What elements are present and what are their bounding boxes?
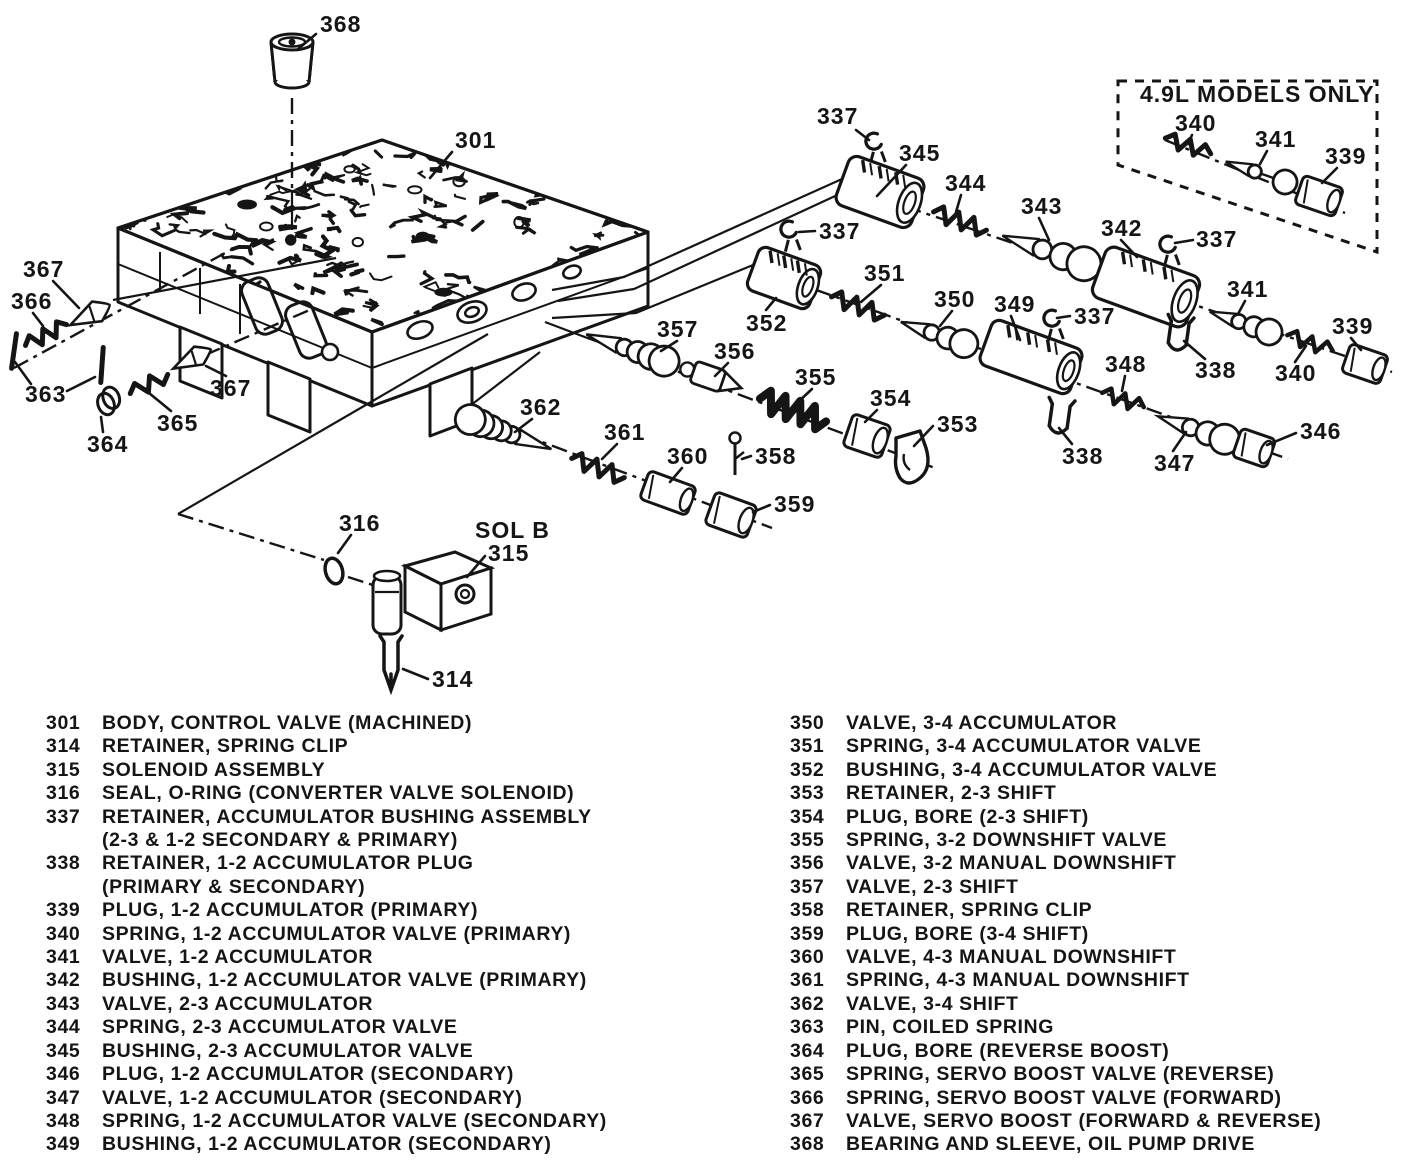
part-364 [93, 385, 124, 417]
body-bore-hole [322, 344, 338, 360]
part-callout-368: 368 [320, 11, 361, 37]
part-name: SPRING, 1-2 ACCUMULATOR VALVE (SECONDARY… [102, 1110, 746, 1133]
part-number: 338 [46, 852, 90, 875]
part-name: RETAINER, SPRING CLIP [102, 735, 746, 758]
part-callout-338: 338 [1195, 357, 1236, 383]
part-callout-349: 349 [994, 291, 1035, 317]
part-callout-340: 340 [1175, 110, 1216, 136]
part-callout-342: 342 [1101, 215, 1142, 241]
part-callout-367: 367 [23, 256, 64, 282]
part-name: RETAINER, 1-2 ACCUMULATOR PLUG [102, 852, 746, 875]
parts-list-item: 346PLUG, 1-2 ACCUMULATOR (SECONDARY) [46, 1063, 746, 1086]
part-number: 337 [46, 806, 90, 829]
part-name: SEAL, O-RING (CONVERTER VALVE SOLENOID) [102, 782, 746, 805]
part-number: 353 [790, 782, 834, 805]
parts-list-item: 352BUSHING, 3-4 ACCUMULATOR VALVE [790, 759, 1405, 782]
part-name: SPRING, 3-4 ACCUMULATOR VALVE [846, 735, 1405, 758]
part-341 [1206, 299, 1286, 348]
parts-list-item: 314RETAINER, SPRING CLIP [46, 735, 746, 758]
part-number: 340 [46, 923, 90, 946]
part-number: 367 [790, 1110, 834, 1133]
part-number: 301 [46, 712, 90, 735]
part-number: 358 [790, 899, 834, 922]
parts-list-item: 367VALVE, SERVO BOOST (FORWARD & REVERSE… [790, 1110, 1405, 1133]
part-349 [978, 318, 1087, 397]
parts-list-item: 359PLUG, BORE (3-4 SHIFT) [790, 923, 1405, 946]
parts-list-item: 348SPRING, 1-2 ACCUMULATOR VALVE (SECOND… [46, 1110, 746, 1133]
part-callout-315: 315 [488, 540, 529, 566]
parts-list-item: 338RETAINER, 1-2 ACCUMULATOR PLUG [46, 852, 746, 875]
part-number: 344 [46, 1016, 90, 1039]
part-callout-337: 337 [819, 218, 860, 244]
part-346 [1232, 428, 1276, 468]
part-name: VALVE, SERVO BOOST (FORWARD & REVERSE) [846, 1110, 1405, 1133]
part-361 [569, 451, 627, 485]
part-number: 359 [790, 923, 834, 946]
part-number: 352 [790, 759, 834, 782]
parts-list-item: 342BUSHING, 1-2 ACCUMULATOR VALVE (PRIMA… [46, 969, 746, 992]
parts-list-item-continuation: (2-3 & 1-2 SECONDARY & PRIMARY) [46, 829, 746, 852]
parts-list-item: 343VALVE, 2-3 ACCUMULATOR [46, 993, 746, 1016]
part-callout-343: 343 [1021, 193, 1062, 219]
part-number: 314 [46, 735, 90, 758]
part-callout-363: 363 [25, 381, 66, 407]
part-number: 368 [790, 1133, 834, 1156]
part-callout-345: 345 [899, 140, 940, 166]
part-name: VALVE, 3-2 MANUAL DOWNSHIFT [846, 852, 1405, 875]
part-callout-301: 301 [455, 127, 496, 153]
part-name: SPRING, 1-2 ACCUMULATOR VALVE (PRIMARY) [102, 923, 746, 946]
part-number: 347 [46, 1087, 90, 1110]
part-name: PLUG, 1-2 ACCUMULATOR (PRIMARY) [102, 899, 746, 922]
part-callout-365: 365 [157, 410, 198, 436]
parts-list-item: 350VALVE, 3-4 ACCUMULATOR [790, 712, 1405, 735]
part-callout-359: 359 [774, 491, 815, 517]
part-callout-356: 356 [714, 338, 755, 364]
part-number: 363 [790, 1016, 834, 1039]
part-callout-362: 362 [520, 394, 561, 420]
part-name: VALVE, 3-4 ACCUMULATOR [846, 712, 1405, 735]
part-name: PIN, COILED SPRING [846, 1016, 1405, 1039]
part-352 [745, 245, 825, 312]
parts-list-item: 344SPRING, 2-3 ACCUMULATOR VALVE [46, 1016, 746, 1039]
part-number: 315 [46, 759, 90, 782]
part-callout-347: 347 [1154, 450, 1195, 476]
part-callout-316: 316 [339, 510, 380, 536]
parts-list-item: 340SPRING, 1-2 ACCUMULATOR VALVE (PRIMAR… [46, 923, 746, 946]
part-314 [380, 636, 402, 690]
part-callout-351: 351 [864, 260, 905, 286]
part-339-inset [1294, 175, 1344, 217]
part-callout-355: 355 [795, 364, 836, 390]
part-number: 364 [790, 1040, 834, 1063]
part-358 [730, 433, 745, 476]
part-339 [1341, 343, 1389, 385]
part-359 [705, 492, 758, 539]
part-callout-337: 337 [1074, 303, 1115, 329]
exploded-diagram: 3683013373453443433423373413393403383373… [0, 0, 1408, 710]
part-callout-314: 314 [432, 666, 473, 692]
part-callout-367: 367 [210, 375, 251, 401]
part-callout-357: 357 [657, 316, 698, 342]
part-name: SPRING, 2-3 ACCUMULATOR VALVE [102, 1016, 746, 1039]
parts-list-item: 345BUSHING, 2-3 ACCUMULATOR VALVE [46, 1040, 746, 1063]
parts-list-item: 357VALVE, 2-3 SHIFT [790, 876, 1405, 899]
parts-list-item: 341VALVE, 1-2 ACCUMULATOR [46, 946, 746, 969]
part-number: 360 [790, 946, 834, 969]
part-name: PLUG, BORE (3-4 SHIFT) [846, 923, 1405, 946]
part-363-b [98, 345, 106, 385]
part-number: 345 [46, 1040, 90, 1063]
part-360 [639, 470, 697, 515]
part-name: PLUG, BORE (2-3 SHIFT) [846, 806, 1405, 829]
parts-list-item-continuation: (PRIMARY & SECONDARY) [46, 876, 746, 899]
part-366 [22, 318, 69, 351]
part-number: 339 [46, 899, 90, 922]
part-name: VALVE, 1-2 ACCUMULATOR (SECONDARY) [102, 1087, 746, 1110]
part-name: PLUG, 1-2 ACCUMULATOR (SECONDARY) [102, 1063, 746, 1086]
parts-list-item: 368BEARING AND SLEEVE, OIL PUMP DRIVE [790, 1133, 1405, 1156]
part-number: 346 [46, 1063, 90, 1086]
part-name: SPRING, SERVO BOOST VALVE (REVERSE) [846, 1063, 1405, 1086]
part-callout-364: 364 [87, 431, 128, 457]
part-callout-4-9l-models-only: 4.9L MODELS ONLY [1140, 81, 1375, 107]
part-name: VALVE, 2-3 ACCUMULATOR [102, 993, 746, 1016]
parts-list-item: 339PLUG, 1-2 ACCUMULATOR (PRIMARY) [46, 899, 746, 922]
part-name-continued: (2-3 & 1-2 SECONDARY & PRIMARY) [102, 829, 746, 852]
parts-list-item: 362VALVE, 3-4 SHIFT [790, 993, 1405, 1016]
part-name: VALVE, 2-3 SHIFT [846, 876, 1405, 899]
parts-list-item: 351SPRING, 3-4 ACCUMULATOR VALVE [790, 735, 1405, 758]
part-name: VALVE, 1-2 ACCUMULATOR [102, 946, 746, 969]
part-number: 349 [46, 1133, 90, 1156]
part-name: SPRING, 3-2 DOWNSHIFT VALVE [846, 829, 1405, 852]
parts-list-item: 356VALVE, 3-2 MANUAL DOWNSHIFT [790, 852, 1405, 875]
parts-list-item: 301BODY, CONTROL VALVE (MACHINED) [46, 712, 746, 735]
part-number: 357 [790, 876, 834, 899]
part-number: 350 [790, 712, 834, 735]
parts-list-item: 363PIN, COILED SPRING [790, 1016, 1405, 1039]
part-callout-341: 341 [1255, 126, 1296, 152]
part-name: BODY, CONTROL VALVE (MACHINED) [102, 712, 746, 735]
part-name-continued: (PRIMARY & SECONDARY) [102, 876, 746, 899]
part-name: PLUG, BORE (REVERSE BOOST) [846, 1040, 1405, 1063]
parts-list-item: 361SPRING, 4-3 MANUAL DOWNSHIFT [790, 969, 1405, 992]
part-callout-337: 337 [817, 103, 858, 129]
parts-list-column-right: 350VALVE, 3-4 ACCUMULATOR351SPRING, 3-4 … [790, 712, 1405, 1157]
part-name: VALVE, 4-3 MANUAL DOWNSHIFT [846, 946, 1405, 969]
part-343 [997, 220, 1106, 286]
part-344 [931, 204, 989, 237]
part-callout-358: 358 [755, 443, 796, 469]
part-callout-340: 340 [1275, 360, 1316, 386]
part-341-inset [1222, 150, 1300, 197]
parts-list-item: 366SPRING, SERVO BOOST VALVE (FORWARD) [790, 1087, 1405, 1110]
part-name: RETAINER, SPRING CLIP [846, 899, 1405, 922]
part-name: BUSHING, 1-2 ACCUMULATOR VALVE (PRIMARY) [102, 969, 746, 992]
part-number: 342 [46, 969, 90, 992]
parts-list-item: 353RETAINER, 2-3 SHIFT [790, 782, 1405, 805]
part-callout-346: 346 [1300, 418, 1341, 444]
parts-list-item: 354PLUG, BORE (2-3 SHIFT) [790, 806, 1405, 829]
parts-list-item: 358RETAINER, SPRING CLIP [790, 899, 1405, 922]
parts-list-item: 316SEAL, O-RING (CONVERTER VALVE SOLENOI… [46, 782, 746, 805]
part-name: RETAINER, ACCUMULATOR BUSHING ASSEMBLY [102, 806, 746, 829]
part-callout-352: 352 [746, 310, 787, 336]
part-callout-354: 354 [870, 385, 911, 411]
parts-list-item: 355SPRING, 3-2 DOWNSHIFT VALVE [790, 829, 1405, 852]
part-name: RETAINER, 2-3 SHIFT [846, 782, 1405, 805]
part-callout-366: 366 [11, 288, 52, 314]
part-callout-350: 350 [934, 286, 975, 312]
parts-list-item: 347VALVE, 1-2 ACCUMULATOR (SECONDARY) [46, 1087, 746, 1110]
part-number: 365 [790, 1063, 834, 1086]
part-number: 356 [790, 852, 834, 875]
part-number: 341 [46, 946, 90, 969]
part-callout-339: 339 [1325, 143, 1366, 169]
part-callout-348: 348 [1105, 351, 1146, 377]
parts-list-column-left: 301BODY, CONTROL VALVE (MACHINED)314RETA… [46, 712, 746, 1157]
part-callout-341: 341 [1227, 276, 1268, 302]
part-name: BEARING AND SLEEVE, OIL PUMP DRIVE [846, 1133, 1405, 1156]
part-number: 361 [790, 969, 834, 992]
part-number: 366 [790, 1087, 834, 1110]
part-number: 351 [790, 735, 834, 758]
part-337-c [780, 220, 801, 253]
part-355 [756, 388, 829, 432]
part-353 [896, 431, 929, 483]
part-365 [127, 368, 171, 400]
parts-list-item: 365SPRING, SERVO BOOST VALVE (REVERSE) [790, 1063, 1405, 1086]
parts-list: 301BODY, CONTROL VALVE (MACHINED)314RETA… [0, 712, 1408, 1157]
part-name: SPRING, SERVO BOOST VALVE (FORWARD) [846, 1087, 1405, 1110]
part-callout-339: 339 [1332, 313, 1373, 339]
part-callout-337: 337 [1196, 226, 1237, 252]
part-316 [322, 556, 345, 586]
parts-list-item: 360VALVE, 4-3 MANUAL DOWNSHIFT [790, 946, 1405, 969]
part-351 [829, 289, 887, 322]
part-number: 355 [790, 829, 834, 852]
part-number: 362 [790, 993, 834, 1016]
parts-list-item: 364PLUG, BORE (REVERSE BOOST) [790, 1040, 1405, 1063]
manual-page: 3683013373453443433423373413393403383373… [0, 0, 1408, 1160]
part-number: 343 [46, 993, 90, 1016]
part-name: BUSHING, 3-4 ACCUMULATOR VALVE [846, 759, 1405, 782]
part-name: BUSHING, 2-3 ACCUMULATOR VALVE [102, 1040, 746, 1063]
part-callout-344: 344 [945, 170, 986, 196]
parts-list-item: 337RETAINER, ACCUMULATOR BUSHING ASSEMBL… [46, 806, 746, 829]
part-number: 354 [790, 806, 834, 829]
part-number: 316 [46, 782, 90, 805]
part-number: 348 [46, 1110, 90, 1133]
parts-list-item: 315SOLENOID ASSEMBLY [46, 759, 746, 782]
part-name: SPRING, 4-3 MANUAL DOWNSHIFT [846, 969, 1405, 992]
part-callout-338: 338 [1062, 443, 1103, 469]
part-callout-353: 353 [937, 411, 978, 437]
part-350 [896, 309, 981, 362]
part-name: SOLENOID ASSEMBLY [102, 759, 746, 782]
part-callout-360: 360 [667, 443, 708, 469]
part-name: VALVE, 3-4 SHIFT [846, 993, 1405, 1016]
part-callout-361: 361 [604, 419, 645, 445]
parts-list-item: 349BUSHING, 1-2 ACCUMULATOR (SECONDARY) [46, 1133, 746, 1156]
part-name: BUSHING, 1-2 ACCUMULATOR (SECONDARY) [102, 1133, 746, 1156]
part-315 [373, 552, 491, 634]
